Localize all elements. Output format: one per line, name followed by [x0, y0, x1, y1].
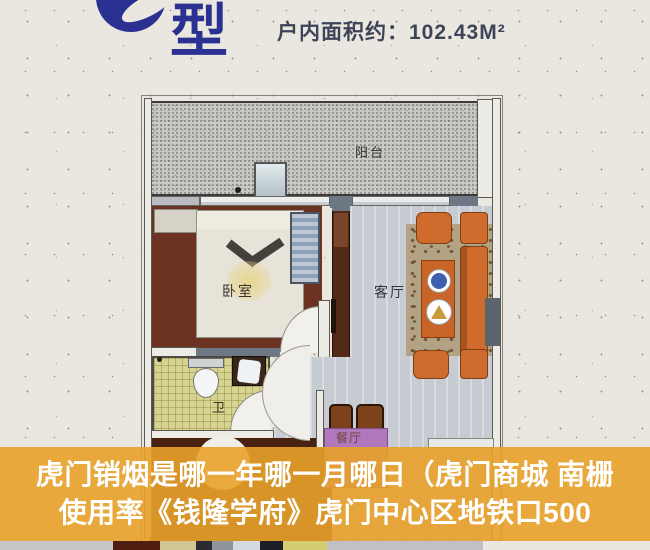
- entry-door-panel: [332, 204, 350, 362]
- door-jamb: [316, 390, 324, 448]
- door-panel-upper: [334, 213, 348, 247]
- strip-fragment: [196, 541, 212, 550]
- title-overlay: 虎门销烟是哪一年哪一月哪日（虎门商城 南栅 使用率《钱隆学府》虎门中心区地铁口5…: [0, 447, 650, 541]
- door-handle: [331, 299, 336, 333]
- ottoman-top: [460, 212, 488, 244]
- strip-fragment: [160, 541, 196, 550]
- wall-window-sill: [149, 196, 200, 206]
- dining-chair-right: [356, 404, 384, 430]
- plate-blue-inner: [431, 273, 447, 289]
- room-balcony: [149, 101, 496, 196]
- toilet-tank: [188, 358, 224, 368]
- bedroom-window: [200, 196, 330, 206]
- dining-label: 餐厅: [336, 429, 362, 446]
- unit-type-character: 型: [170, 0, 228, 68]
- armchair-top: [416, 212, 452, 244]
- living-window: [352, 196, 450, 206]
- balcony-label: 阳台: [355, 142, 385, 161]
- sofa-long: [460, 246, 488, 358]
- poster-photo: { "header": { "unit_type_suffix": "型", "…: [0, 0, 650, 550]
- title-line-2: 使用率《钱隆学府》虎门中心区地铁口500: [59, 494, 592, 532]
- area-label: 户内面积约：102.43M²: [277, 16, 506, 46]
- door-panel-top: [332, 204, 350, 211]
- strip-paper: [483, 541, 650, 550]
- strip-fragment: [283, 541, 327, 550]
- title-line-1: 虎门销烟是哪一年哪一月哪日（虎门商城 南栅: [36, 456, 614, 494]
- bathroom-label: 卫: [212, 397, 225, 416]
- shower-basin-inner: [237, 359, 262, 385]
- door-jamb: [318, 300, 330, 358]
- photo-strip: [0, 541, 650, 550]
- nightstand: [154, 209, 198, 233]
- east-wall-pillar: [485, 298, 500, 346]
- strip-fragment: [233, 541, 260, 550]
- plate-tan-inner: [431, 305, 447, 319]
- strip-fragment: [327, 541, 483, 550]
- strip-fragment: [260, 541, 283, 550]
- armchair-bottom: [413, 350, 449, 379]
- floor-drain: [235, 187, 241, 193]
- ottoman-bottom: [460, 349, 488, 379]
- dining-chair-left: [329, 404, 353, 430]
- bedroom-label: 卧室: [222, 281, 254, 301]
- plate-blue: [427, 269, 451, 293]
- living-label: 客厅: [374, 282, 406, 302]
- wardrobe: [290, 212, 320, 284]
- brand-logo: [86, 0, 178, 46]
- strip-fragment: [113, 541, 160, 550]
- coffee-table: [421, 260, 455, 338]
- plate-tan: [426, 299, 452, 325]
- strip-fragment: [212, 541, 233, 550]
- bathroom-dot: [157, 357, 162, 362]
- shower-basin: [232, 356, 266, 386]
- bed: [196, 210, 304, 338]
